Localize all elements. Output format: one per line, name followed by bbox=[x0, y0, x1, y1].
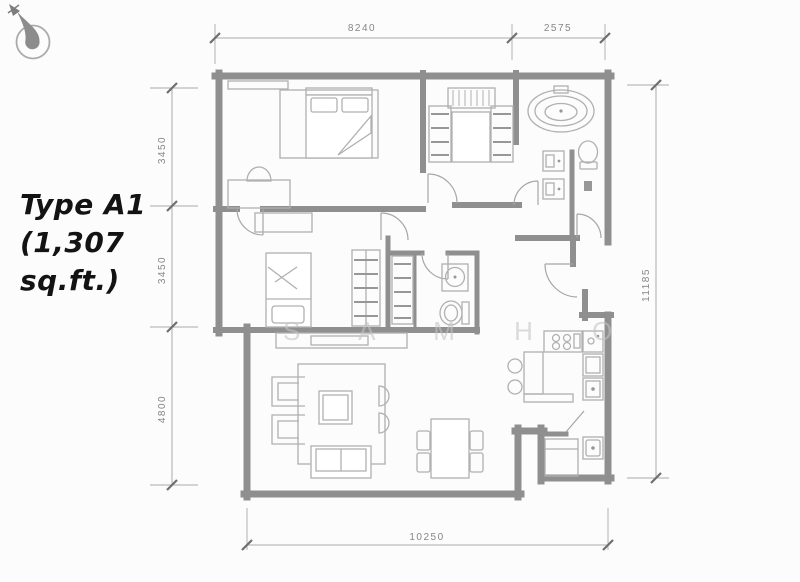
washing-machine bbox=[583, 437, 603, 459]
bar-stool bbox=[508, 380, 522, 394]
unit-title-line1: Type A1 bbox=[20, 186, 180, 224]
unit-title-line2: (1,307 bbox=[20, 224, 180, 262]
desk-chair bbox=[247, 167, 271, 181]
north-arrow-icon bbox=[8, 4, 50, 59]
bar-stool bbox=[508, 359, 522, 373]
dining-chair bbox=[417, 431, 430, 450]
dim-right-total: 11185 bbox=[641, 268, 652, 302]
window-ledge bbox=[228, 81, 288, 89]
dining-chair bbox=[470, 431, 483, 450]
dining-chair bbox=[417, 453, 430, 472]
closet-door bbox=[428, 174, 457, 203]
bathtub bbox=[528, 86, 594, 132]
wc-fixture bbox=[584, 181, 592, 191]
dim-bottom-total: 10250 bbox=[409, 532, 444, 543]
bedroom2-door bbox=[381, 213, 408, 240]
oven bbox=[583, 354, 603, 376]
coffee-table bbox=[319, 391, 352, 424]
walk-in-closet bbox=[429, 88, 513, 162]
hall-closet bbox=[392, 256, 413, 324]
dining-chair bbox=[470, 453, 483, 472]
dim-top-right: 2575 bbox=[544, 23, 572, 34]
yard-door bbox=[566, 411, 584, 432]
yard-counter bbox=[545, 439, 578, 476]
small-bath-sink bbox=[442, 264, 468, 291]
desk bbox=[228, 180, 290, 208]
unit-title: Type A1 (1,307 sq.ft.) bbox=[20, 186, 180, 300]
dim-top-main: 8240 bbox=[348, 23, 376, 34]
unit-title-line3: sq.ft.) bbox=[20, 262, 180, 300]
dim-left-lower: 4800 bbox=[157, 395, 168, 423]
master-bath-door bbox=[514, 181, 538, 205]
wardrobe-bedroom2 bbox=[352, 250, 380, 326]
armchair bbox=[272, 415, 305, 444]
floorplan-page: 8240 2575 3450 3450 4800 11185 10250 bbox=[0, 0, 800, 582]
toilet-master bbox=[579, 141, 598, 169]
small-bath-door bbox=[422, 253, 448, 279]
watermark: S A M H O bbox=[283, 316, 638, 346]
wc-door bbox=[577, 214, 601, 238]
fridge bbox=[583, 378, 603, 400]
armchair bbox=[272, 377, 305, 406]
round-chair bbox=[379, 413, 389, 433]
vanity-sinks bbox=[543, 151, 564, 199]
sofa bbox=[311, 446, 371, 478]
entry-door bbox=[545, 264, 577, 297]
dim-left-upper: 3450 bbox=[157, 136, 168, 164]
kitchen-island bbox=[524, 352, 573, 402]
dining-table bbox=[431, 419, 469, 478]
round-chair bbox=[379, 386, 389, 406]
master-bed bbox=[280, 88, 378, 158]
